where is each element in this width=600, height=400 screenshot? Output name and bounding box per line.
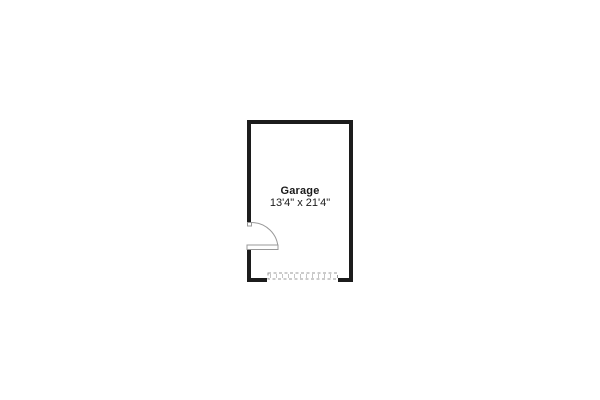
room-label: Garage [251,186,349,197]
door-jamb [248,223,252,227]
garage-door-opening [267,276,338,284]
door-leaf-icon [247,245,278,250]
room-dimensions: 13'4" x 21'4" [251,198,349,209]
room-text: Garage 13'4" x 21'4" [251,186,349,209]
floorplan-canvas: Garage 13'4" x 21'4" [0,0,600,400]
